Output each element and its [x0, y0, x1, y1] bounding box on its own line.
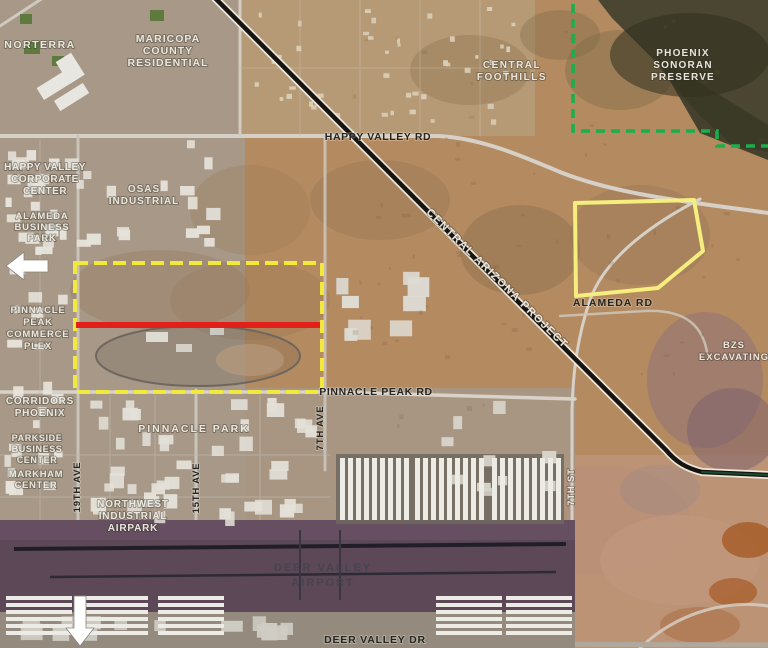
building-block	[641, 373, 643, 375]
hangar-stripe	[548, 458, 553, 520]
building-block	[622, 40, 625, 43]
hangar-stripe	[447, 458, 452, 520]
hangar-stripe	[524, 458, 529, 520]
building-block	[363, 32, 369, 35]
building-block	[482, 404, 485, 407]
label-markham-center: MARKHAM CENTER	[9, 469, 63, 491]
building-block	[406, 214, 411, 217]
building-block	[412, 92, 418, 96]
hangar-stripe	[82, 610, 148, 614]
building-block	[353, 94, 356, 98]
label-line: BZS	[723, 340, 745, 351]
hangar-stripe	[396, 458, 401, 520]
building-block	[116, 438, 125, 450]
label-line: BUSINESS	[15, 222, 70, 233]
label-line: PHOENIX	[15, 408, 66, 419]
building-block	[180, 186, 195, 195]
building-block	[456, 142, 460, 146]
label-line: NORTHWEST	[97, 499, 169, 510]
hangar-stripe	[82, 617, 148, 621]
label-parkside-business-center: PARKSIDE BUSINESS CENTER	[12, 433, 63, 465]
hangar-stripe	[82, 631, 148, 635]
label-line: PHOENIX	[656, 48, 709, 59]
building-block	[607, 234, 611, 238]
map-canvas[interactable]: NORTERRA MARICOPA COUNTY RESIDENTIAL CEN…	[0, 0, 768, 648]
hangar-stripe	[436, 624, 502, 628]
building-block	[506, 47, 510, 53]
building-block	[371, 18, 376, 24]
building-block	[188, 197, 198, 210]
building-block	[353, 330, 359, 335]
building-block	[759, 139, 764, 141]
building-block	[296, 46, 301, 51]
hangar-stripe	[348, 458, 353, 520]
hangar-stripe	[364, 458, 369, 520]
building-block	[724, 212, 730, 216]
label-line: RESIDENTIAL	[127, 57, 208, 69]
building-block	[187, 140, 195, 148]
building-block	[419, 310, 422, 315]
label-northwest-industrial-airpark: NORTHWEST INDUSTRIAL AIRPARK	[97, 499, 169, 534]
hangar-stripe	[380, 458, 385, 520]
building-block	[281, 623, 294, 635]
hangar-stripe	[455, 458, 460, 520]
building-block	[471, 182, 476, 185]
building-block	[221, 621, 243, 632]
building-block	[8, 151, 16, 160]
building-block	[680, 341, 684, 343]
label-line: CORPORATE	[11, 174, 79, 185]
building-block	[491, 119, 496, 125]
hangar-stripe	[471, 458, 476, 520]
building-block	[521, 214, 525, 217]
building-block	[427, 13, 432, 18]
building-block	[212, 446, 224, 456]
building-block	[516, 245, 521, 247]
building-block	[253, 616, 266, 631]
building-block	[259, 13, 262, 18]
label-line: PRESERVE	[651, 72, 715, 83]
hangar-stripe	[436, 631, 502, 635]
building-block	[6, 198, 12, 207]
building-block	[673, 372, 675, 376]
building-block	[413, 255, 416, 260]
label-line: SONORAN	[653, 60, 713, 71]
label-happy-valley-rd: HAPPY VALLEY RD	[325, 131, 431, 143]
building-block	[360, 316, 363, 319]
building-block	[161, 181, 168, 192]
building-block	[533, 173, 535, 175]
label-line: INDUSTRIAL	[109, 196, 180, 207]
building-block	[287, 94, 293, 99]
building-block	[736, 258, 740, 261]
building-block	[348, 320, 371, 340]
hangar-stripe	[506, 624, 572, 628]
building-block	[603, 144, 607, 146]
label-line: CENTER	[15, 480, 58, 491]
building-block	[280, 97, 284, 101]
building-block	[206, 208, 220, 220]
building-block	[382, 342, 387, 346]
hangar-stripe	[404, 458, 409, 520]
label-line: PLEX	[24, 341, 52, 352]
building-block	[442, 437, 454, 446]
hangar-stripe	[158, 596, 224, 600]
building-block	[500, 45, 503, 49]
building-block	[225, 473, 239, 482]
building-block	[177, 461, 192, 470]
label-line: PEAK	[23, 317, 53, 328]
hangar-stripe	[436, 610, 502, 614]
label-line: DEER VALLEY	[274, 562, 372, 574]
label-line: INDUSTRIAL	[99, 511, 168, 522]
label-line: OSAS	[128, 184, 160, 195]
building-block	[368, 36, 374, 40]
building-block	[29, 292, 43, 302]
label-line: EXCAVATING	[699, 352, 768, 363]
label-line: CORRIDORS	[6, 396, 74, 407]
building-block	[31, 202, 40, 211]
building-block	[376, 216, 381, 219]
building-block	[676, 206, 681, 209]
label-15th-ave: 15TH AVE	[191, 463, 202, 514]
building-block	[617, 279, 620, 282]
building-block	[381, 203, 384, 208]
hangar-stripe	[388, 458, 393, 520]
label-line: CENTER	[17, 455, 58, 465]
building-block	[457, 255, 461, 258]
building-block	[219, 508, 231, 519]
building-block	[609, 262, 614, 266]
building-block	[255, 82, 259, 86]
building-block	[445, 355, 451, 359]
hangar-stripe	[158, 624, 224, 628]
building-block	[403, 296, 426, 311]
building-block	[664, 26, 667, 30]
building-block	[426, 305, 429, 308]
hangar-stripe	[506, 617, 572, 621]
building-block	[701, 333, 704, 336]
building-block	[289, 86, 296, 89]
hangar-stripe	[6, 610, 72, 614]
building-block	[295, 419, 306, 429]
label-line: AIRPARK	[108, 523, 158, 534]
building-block	[502, 323, 507, 325]
building-block	[512, 328, 518, 332]
label-line: AIRPORT	[291, 577, 355, 589]
label-line: COMMERCE	[7, 329, 70, 340]
building-block	[90, 401, 102, 409]
building-block	[389, 267, 391, 270]
building-block	[342, 296, 359, 308]
hangar-stripe	[158, 610, 224, 614]
building-block	[160, 437, 170, 451]
label-7th-ave: 7TH AVE	[315, 406, 326, 451]
building-block	[128, 484, 137, 494]
label-line: PARKSIDE	[12, 433, 63, 443]
building-block	[99, 417, 109, 430]
building-block	[401, 214, 406, 218]
label-phoenix-sonoran-preserve: PHOENIX SONORAN PRESERVE	[651, 48, 715, 83]
building-block	[395, 339, 399, 342]
hangar-stripe	[431, 458, 436, 520]
hangar-stripe	[6, 617, 72, 621]
label-deer-valley-dr: DEER VALLEY DR	[324, 634, 426, 646]
hangar-stripe	[158, 617, 224, 621]
building-block	[672, 20, 676, 24]
building-block	[33, 420, 40, 428]
building-block	[204, 157, 212, 169]
building-block	[456, 251, 461, 254]
hangar-stripe	[6, 603, 72, 607]
building-block	[493, 401, 506, 414]
building-block	[270, 469, 288, 479]
building-block	[382, 113, 388, 117]
building-block	[465, 68, 471, 73]
building-block	[585, 153, 587, 157]
building-block	[204, 238, 215, 247]
label-pinnacle-park: PINNACLE PARK	[138, 423, 250, 435]
building-block	[110, 474, 124, 489]
building-block	[526, 347, 532, 351]
building-block	[383, 73, 389, 78]
building-block	[231, 399, 248, 410]
building-block	[58, 295, 68, 305]
building-block	[364, 39, 368, 41]
label-line: BUSINESS	[12, 444, 63, 454]
hangar-stripe	[340, 458, 345, 520]
hangar-stripe	[423, 458, 428, 520]
hangar-stripe	[6, 631, 72, 635]
hangar-stripe	[506, 631, 572, 635]
building-block	[5, 455, 11, 467]
building-block	[255, 500, 272, 515]
building-block	[589, 124, 593, 127]
hangar-stripe	[556, 458, 561, 520]
building-block	[197, 226, 210, 235]
hangar-stripe	[516, 458, 521, 520]
hangar-stripe	[415, 458, 420, 520]
hangar-stripe	[158, 631, 224, 635]
label-line: PINNACLE	[11, 305, 66, 316]
label-line: ALAMEDA	[15, 211, 68, 222]
hangar-stripe	[158, 603, 224, 607]
hangar-stripe	[506, 596, 572, 600]
hangar-stripe	[479, 458, 484, 520]
building-block	[410, 110, 416, 115]
building-block	[239, 437, 252, 452]
hangar-stripe	[540, 458, 545, 520]
hangar-stripe	[436, 596, 502, 600]
label-line: COUNTY	[143, 45, 193, 57]
building-block	[475, 55, 478, 59]
building-block	[564, 31, 568, 34]
hangar-stripe	[500, 458, 505, 520]
building-block	[43, 382, 52, 395]
building-block	[445, 138, 448, 140]
satellite-map: NORTERRA MARICOPA COUNTY RESIDENTIAL CEN…	[0, 0, 768, 648]
building-block	[467, 406, 472, 411]
building-block	[398, 44, 401, 47]
building-block	[298, 21, 302, 27]
label-line: CENTER	[23, 186, 67, 197]
hangar-stripe	[436, 603, 502, 607]
building-block	[311, 105, 316, 109]
building-block	[443, 60, 448, 66]
building-block	[365, 9, 371, 13]
building-block	[715, 70, 720, 75]
building-block	[421, 94, 426, 99]
building-block	[87, 234, 101, 245]
building-block	[7, 340, 22, 348]
label-line: CENTRAL	[483, 60, 541, 71]
building-block	[450, 36, 455, 42]
building-block	[654, 230, 656, 235]
hangar-stripe	[6, 596, 72, 600]
building-block	[455, 158, 460, 161]
hangar-stripe	[372, 458, 377, 520]
label-alameda-rd: ALAMEDA RD	[573, 297, 653, 309]
hangar-stripe	[508, 458, 513, 520]
building-block	[422, 51, 427, 54]
hangar-stripe	[492, 458, 497, 520]
hangar-stripe	[436, 617, 502, 621]
building-block	[685, 106, 688, 109]
building-block	[408, 277, 430, 297]
building-block	[119, 230, 130, 241]
label-central-foothills: CENTRAL FOOTHILLS	[477, 60, 547, 83]
hangar-stripe	[6, 624, 72, 628]
label-norterra: NORTERRA	[4, 39, 76, 51]
building-block	[512, 23, 516, 26]
building-block	[471, 82, 474, 85]
building-block	[556, 239, 558, 244]
building-block	[391, 111, 395, 116]
label-19th-ave: 19TH AVE	[72, 462, 83, 513]
building-block	[399, 414, 403, 419]
building-block	[711, 244, 714, 247]
building-block	[359, 280, 361, 285]
label-pinnacle-peak-rd: PINNACLE PEAK RD	[319, 386, 432, 398]
label-line: MARKHAM	[9, 469, 63, 480]
building-block	[378, 283, 380, 286]
label-line: MARICOPA	[136, 33, 200, 45]
building-block	[453, 416, 462, 429]
building-block	[431, 119, 435, 123]
oval-track	[96, 326, 300, 386]
hangar-stripe	[463, 458, 468, 520]
building-block	[487, 7, 492, 11]
building-block	[469, 116, 475, 119]
label-corridors-phoenix: CORRIDORS PHOENIX	[6, 396, 74, 419]
building-block	[285, 499, 296, 511]
hangar-stripe	[82, 596, 148, 600]
label-7th-st: 7TH ST	[566, 468, 577, 506]
label-line: PARK	[27, 233, 56, 244]
hangar-stripe	[82, 603, 148, 607]
label-line: HAPPY VALLEY	[4, 162, 86, 173]
building-block	[385, 51, 389, 54]
hangar-stripe	[532, 458, 537, 520]
building-block	[703, 276, 706, 278]
hangar-stripe	[506, 610, 572, 614]
label-line: FOOTHILLS	[477, 72, 547, 83]
building-block	[123, 408, 138, 421]
building-block	[406, 93, 411, 98]
building-block	[396, 37, 399, 40]
hangar-stripe	[506, 603, 572, 607]
building-block	[40, 247, 52, 255]
building-block	[157, 481, 170, 490]
building-block	[397, 424, 399, 428]
hangar-stripe	[356, 458, 361, 520]
building-block	[371, 326, 374, 330]
hangar-stripe	[82, 624, 148, 628]
building-block	[267, 398, 276, 411]
building-block	[664, 355, 670, 358]
hangar-stripe	[439, 458, 444, 520]
building-block	[390, 320, 412, 336]
building-block	[336, 278, 348, 294]
building-block	[488, 104, 494, 109]
